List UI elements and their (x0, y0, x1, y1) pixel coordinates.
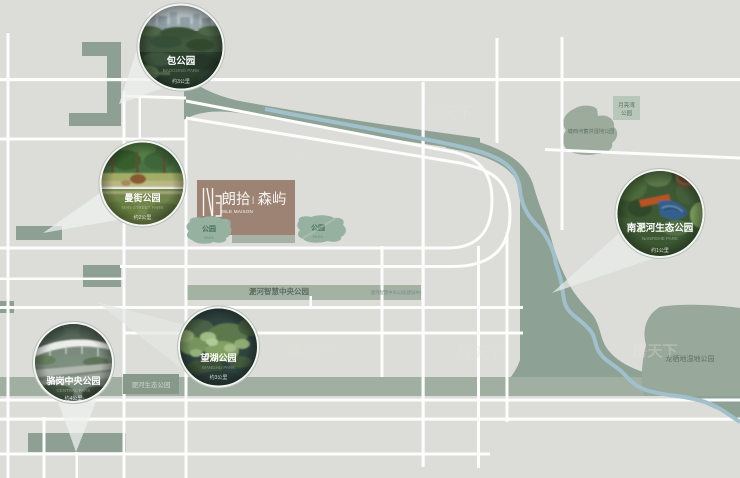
svg-text:塘西河蓄洪湿地公园: 塘西河蓄洪湿地公园 (568, 127, 615, 135)
svg-text:房天下: 房天下 (632, 342, 677, 360)
svg-text:PARK: PARK (313, 234, 324, 239)
svg-text:房天下: 房天下 (457, 344, 502, 362)
svg-text:约3公里: 约3公里 (172, 78, 190, 85)
svg-text:BAOGONG PARK: BAOGONG PARK (163, 68, 199, 73)
svg-text:公园: 公园 (311, 223, 325, 232)
svg-text:CENTRAL PARK: CENTRAL PARK (56, 388, 90, 393)
svg-text:MAN STREET PARK: MAN STREET PARK (121, 205, 163, 210)
svg-text:公园: 公园 (202, 224, 216, 233)
svg-text:房天下: 房天下 (277, 151, 322, 169)
svg-text:淝河智慧中央公园(建设中): 淝河智慧中央公园(建设中) (371, 289, 422, 296)
svg-text:房天下: 房天下 (287, 341, 332, 359)
svg-text:PARK: PARK (204, 235, 215, 240)
svg-text:WANGHU PARK: WANGHU PARK (202, 365, 236, 370)
svg-text:月亮湾: 月亮湾 (618, 101, 635, 109)
svg-text:约2公里: 约2公里 (134, 214, 152, 221)
svg-text:|: | (252, 195, 254, 205)
svg-text:约1公里: 约1公里 (651, 247, 669, 254)
svg-text:淝河生态公园: 淝河生态公园 (132, 380, 171, 389)
svg-text:包公园: 包公园 (166, 55, 196, 67)
svg-text:NANFEIHE PARK: NANFEIHE PARK (642, 236, 678, 241)
svg-text:淝河智慧中央公园: 淝河智慧中央公园 (249, 286, 309, 296)
svg-text:公园: 公园 (621, 110, 633, 117)
svg-text:约4公里: 约4公里 (65, 395, 83, 402)
svg-text:约3公里: 约3公里 (210, 374, 228, 381)
svg-text:曼街公园: 曼街公园 (124, 192, 160, 203)
svg-text:房天下: 房天下 (427, 104, 472, 122)
svg-text:望湖公园: 望湖公园 (200, 352, 236, 363)
svg-text:ISLE MAISON: ISLE MAISON (222, 209, 254, 214)
svg-text:骆岗中央公园: 骆岗中央公园 (46, 375, 100, 386)
svg-text:森屿: 森屿 (258, 191, 287, 208)
svg-text:南淝河生态公园: 南淝河生态公园 (627, 222, 694, 234)
svg-text:朗拾: 朗拾 (222, 191, 251, 208)
